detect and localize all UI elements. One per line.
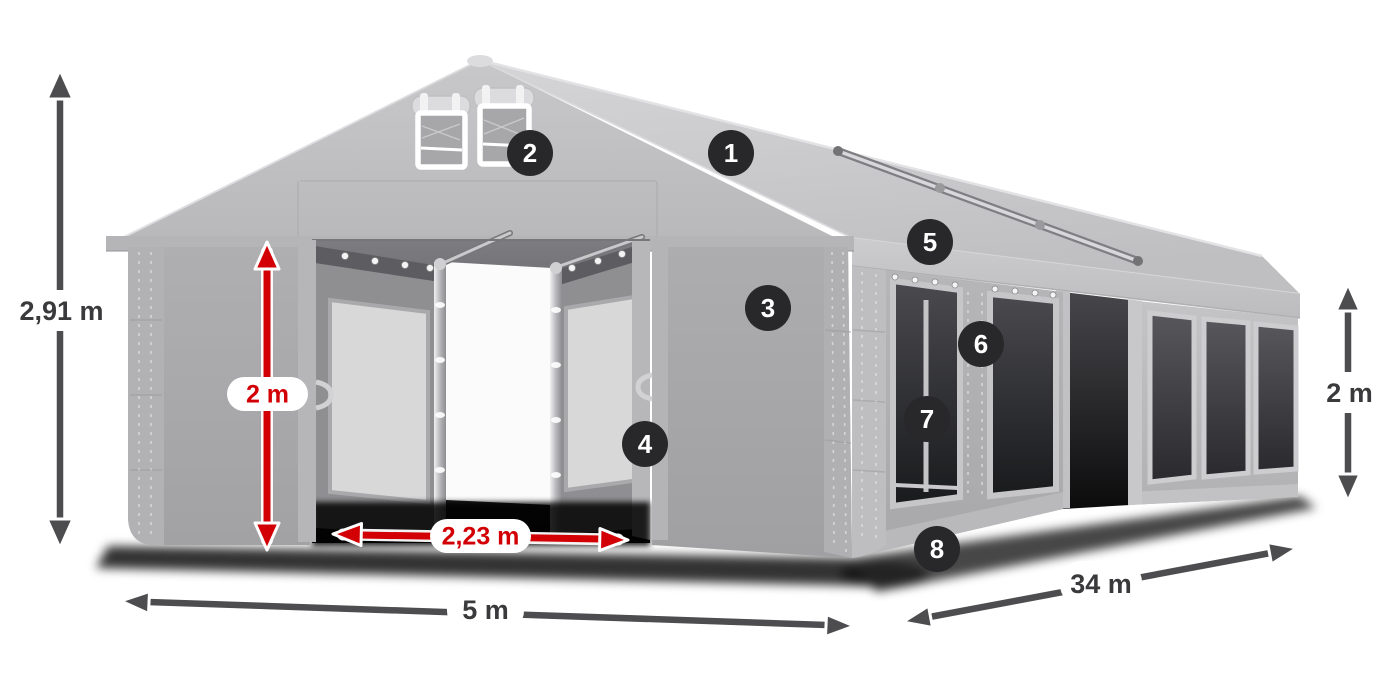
tent-illustration: 1 2 3 4 5 6 7 8 2,91 m 2 m (0, 0, 1400, 700)
side-wall-rear-section (1128, 299, 1298, 505)
svg-text:4: 4 (638, 429, 653, 459)
svg-text:1: 1 (724, 138, 738, 168)
badge-1[interactable]: 1 (708, 130, 754, 176)
svg-text:3: 3 (761, 293, 775, 323)
svg-text:6: 6 (974, 329, 988, 359)
dimension-side-wall-height: 2 m (1311, 284, 1388, 501)
svg-text:7: 7 (920, 404, 934, 434)
svg-text:34 m: 34 m (1070, 569, 1132, 599)
roof-vent-icon (412, 93, 470, 167)
corner-band (852, 266, 886, 558)
corner-band (824, 247, 852, 558)
door-flap-left (315, 246, 446, 538)
svg-text:2,23 m: 2,23 m (442, 523, 520, 551)
svg-text:2 m: 2 m (246, 381, 289, 409)
svg-text:2,91 m: 2,91 m (19, 296, 103, 326)
entrance-opening (312, 233, 650, 546)
svg-text:5: 5 (923, 227, 937, 257)
badge-8[interactable]: 8 (914, 526, 960, 572)
svg-text:8: 8 (930, 534, 944, 564)
side-window (1150, 313, 1296, 482)
badge-5[interactable]: 5 (907, 219, 953, 265)
svg-text:2 m: 2 m (1326, 378, 1373, 408)
badge-2[interactable]: 2 (507, 130, 553, 176)
side-wall-front-section (852, 266, 1070, 558)
see-through-gap (446, 262, 552, 505)
dimension-front-width: 5 m (121, 588, 854, 637)
corner-band (128, 247, 164, 545)
badge-4[interactable]: 4 (622, 421, 668, 467)
dimension-total-height: 2,91 m (12, 70, 111, 548)
svg-text:5 m: 5 m (462, 595, 509, 625)
badge-3[interactable]: 3 (745, 285, 791, 331)
front-wall-right (638, 240, 852, 558)
svg-text:2: 2 (523, 138, 537, 168)
badge-6[interactable]: 6 (958, 321, 1004, 367)
tent-dimension-diagram: 1 2 3 4 5 6 7 8 2,91 m 2 m (0, 0, 1400, 700)
side-door-opening (1063, 292, 1130, 509)
badge-7[interactable]: 7 (904, 396, 950, 442)
